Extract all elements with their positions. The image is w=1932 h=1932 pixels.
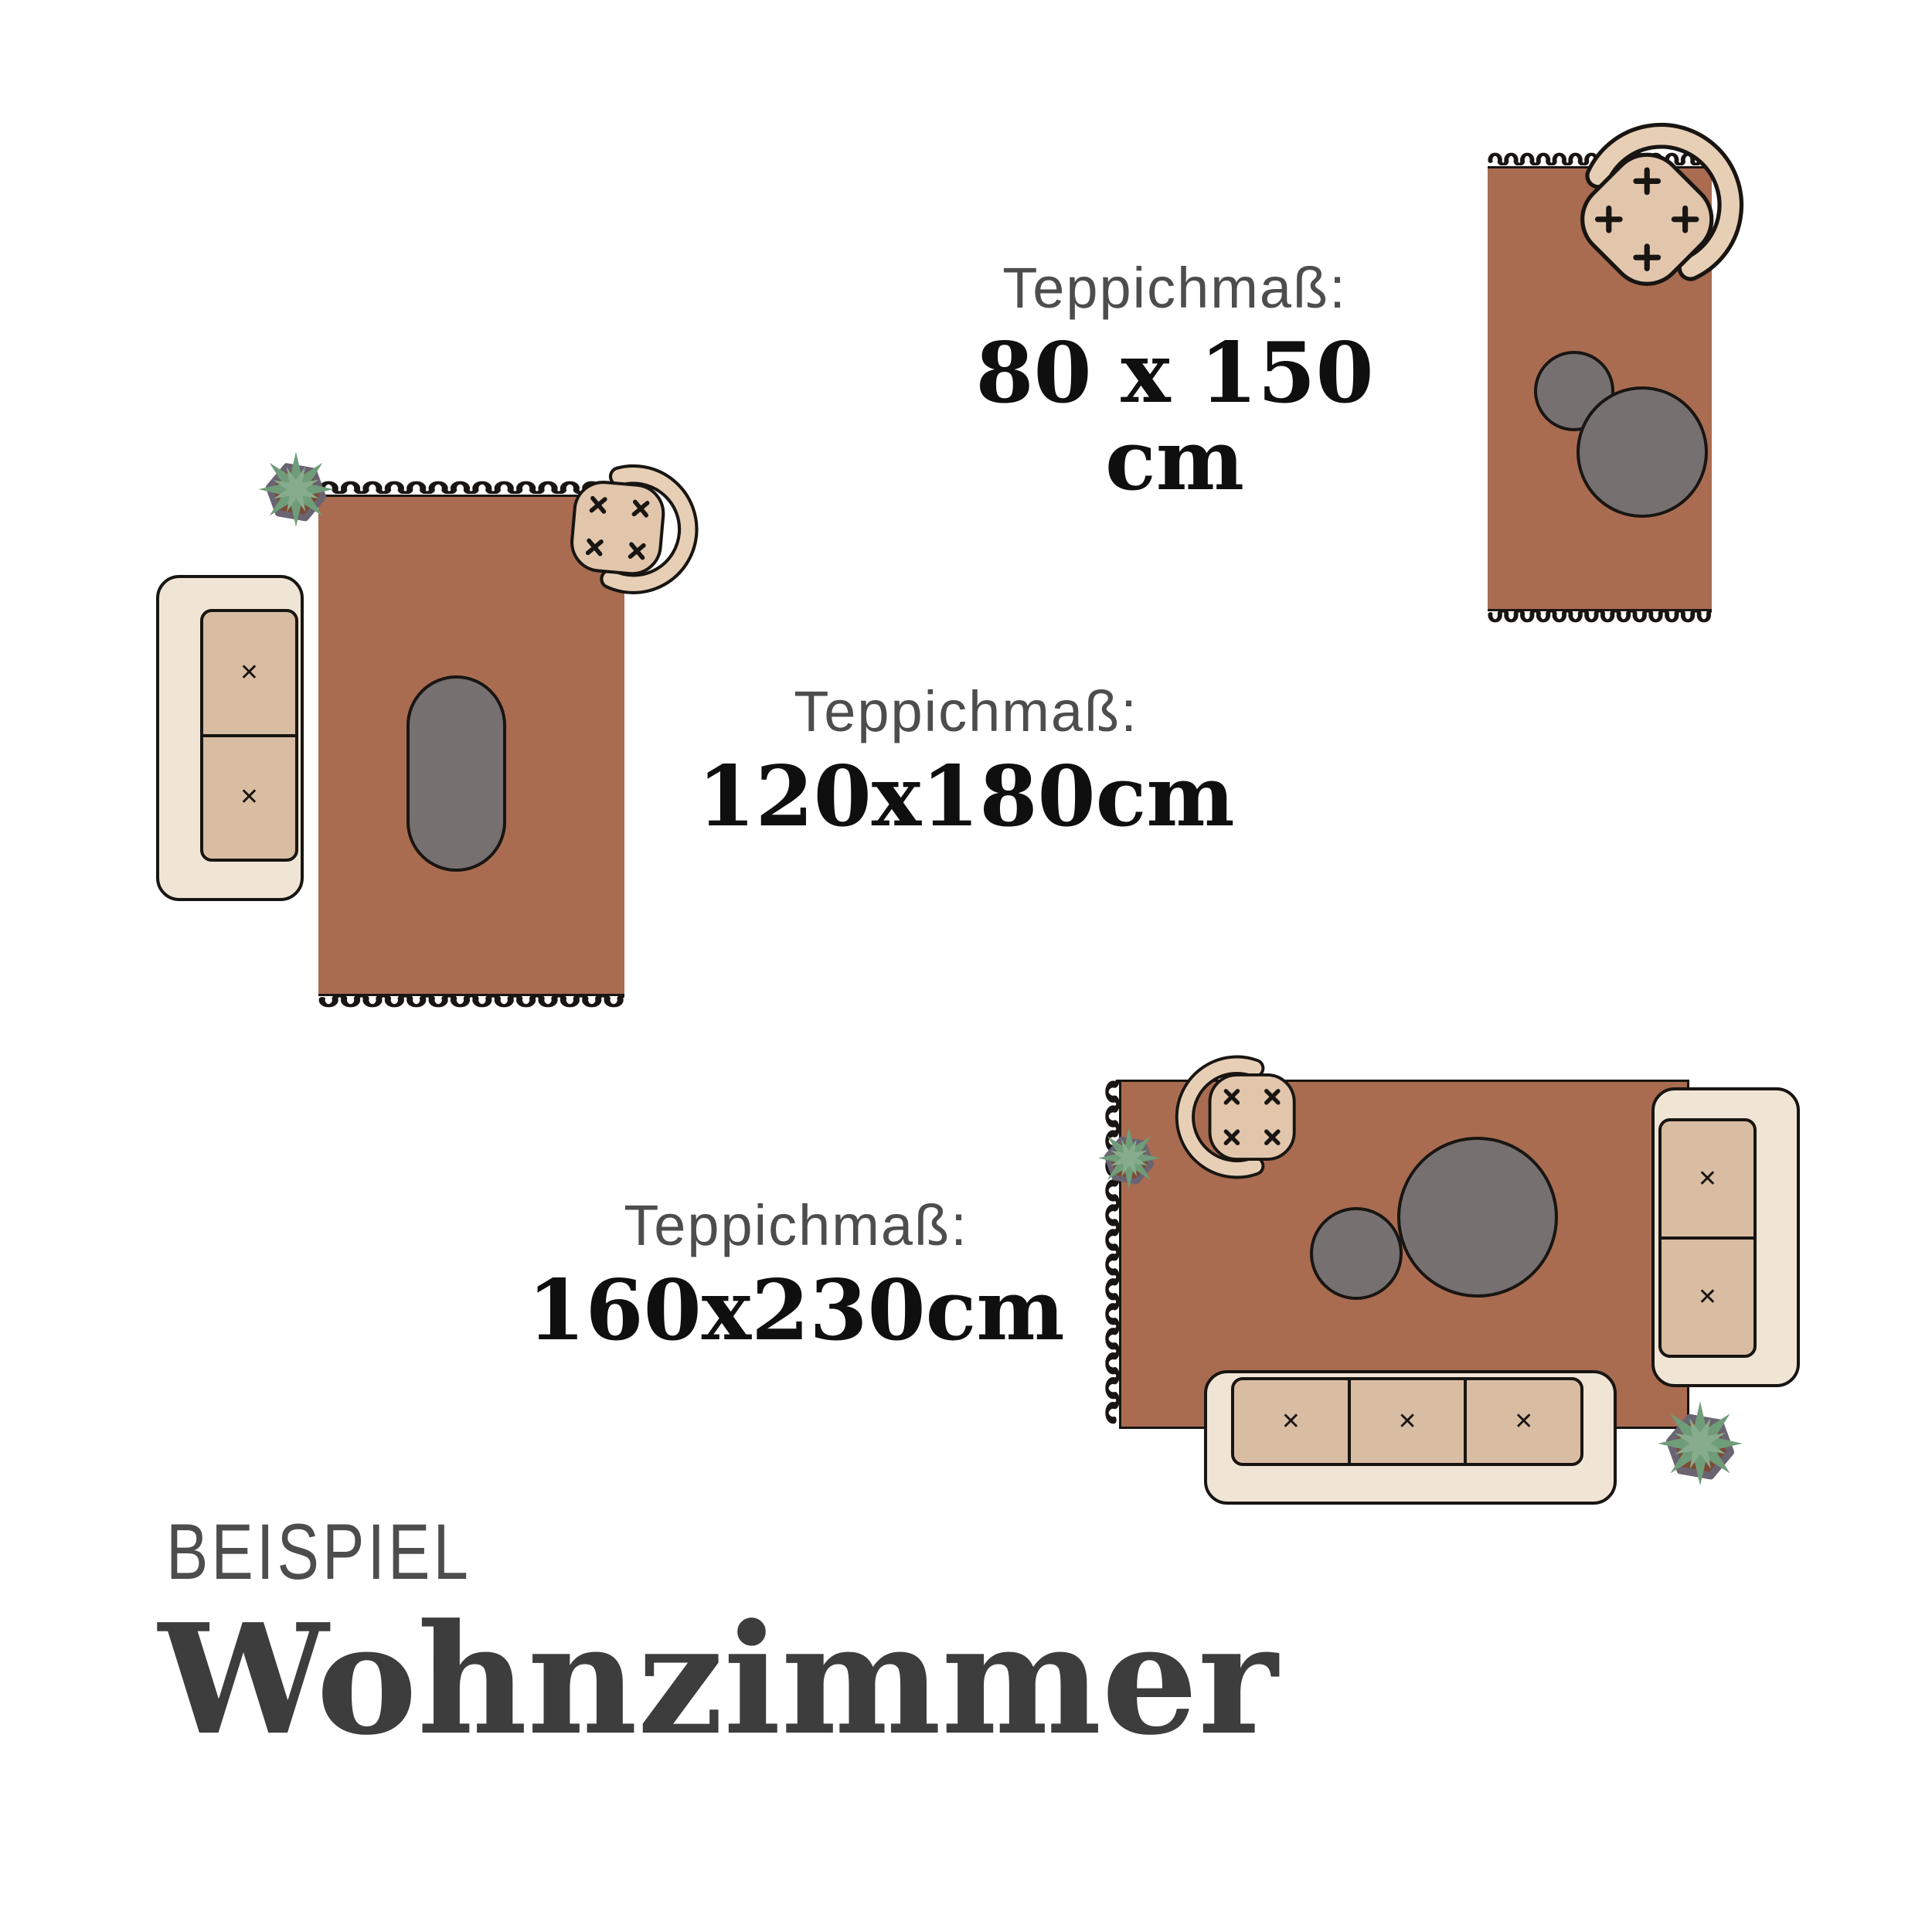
sofa-2seat-icon: ✕ ✕ bbox=[156, 575, 304, 901]
cushion-mark: ✕ bbox=[240, 662, 259, 685]
size-value: 80 x 150 cm bbox=[904, 330, 1445, 505]
size-value: 120x180cm bbox=[696, 753, 1236, 841]
sofa-3seat-icon: ✕ ✕ ✕ bbox=[1204, 1370, 1617, 1505]
coffee-table-small bbox=[1310, 1207, 1403, 1300]
sofa-cushion: ✕ bbox=[1464, 1380, 1580, 1463]
cushion-mark: ✕ bbox=[1698, 1168, 1717, 1191]
coffee-table-oval bbox=[406, 675, 506, 872]
sofa-cushion: ✕ bbox=[203, 734, 295, 859]
size-heading: Teppichmaß: bbox=[526, 1194, 1066, 1258]
sofa-cushion: ✕ bbox=[1348, 1380, 1464, 1463]
plant-icon bbox=[253, 447, 339, 534]
rug-fringe-bottom bbox=[318, 995, 624, 1013]
coffee-table-large bbox=[1577, 386, 1708, 518]
sofa-cushion: ✕ bbox=[1662, 1121, 1753, 1236]
cushion-mark: ✕ bbox=[1514, 1410, 1533, 1434]
example-eyebrow: BEISPIEL bbox=[166, 1507, 471, 1597]
plant-icon bbox=[1651, 1396, 1749, 1494]
sofa-cushion: ✕ bbox=[1662, 1236, 1753, 1355]
cushion-mark: ✕ bbox=[1698, 1286, 1717, 1309]
size-label-160x230: Teppichmaß: 160x230cm bbox=[526, 1194, 1066, 1355]
cushion-mark: ✕ bbox=[1397, 1410, 1417, 1434]
sofa-cushion: ✕ bbox=[203, 612, 295, 734]
rug-fringe-bottom bbox=[1488, 610, 1712, 628]
sofa-cushions: ✕ ✕ bbox=[200, 609, 298, 862]
page-title: Wohnzimmer bbox=[158, 1601, 1277, 1760]
sofa-cushions: ✕ ✕ bbox=[1658, 1118, 1757, 1358]
size-value: 160x230cm bbox=[526, 1267, 1066, 1355]
size-label-120x180: Teppichmaß: 120x180cm bbox=[696, 680, 1236, 841]
sofa-cushion: ✕ bbox=[1234, 1380, 1348, 1463]
cushion-mark: ✕ bbox=[240, 786, 259, 809]
size-heading: Teppichmaß: bbox=[904, 257, 1445, 321]
coffee-table-large bbox=[1397, 1137, 1558, 1298]
rug-size-infographic: Teppichmaß: 80 x 150 cm Teppichmaß: 120x… bbox=[0, 0, 1932, 1932]
armchair-icon bbox=[1557, 108, 1758, 309]
sofa-2seat-icon: ✕ ✕ bbox=[1651, 1087, 1800, 1387]
sofa-cushions: ✕ ✕ ✕ bbox=[1231, 1377, 1583, 1466]
plant-icon bbox=[1094, 1124, 1165, 1195]
cushion-mark: ✕ bbox=[1281, 1410, 1301, 1434]
size-label-80x150: Teppichmaß: 80 x 150 cm bbox=[904, 257, 1445, 505]
size-heading: Teppichmaß: bbox=[696, 680, 1236, 744]
